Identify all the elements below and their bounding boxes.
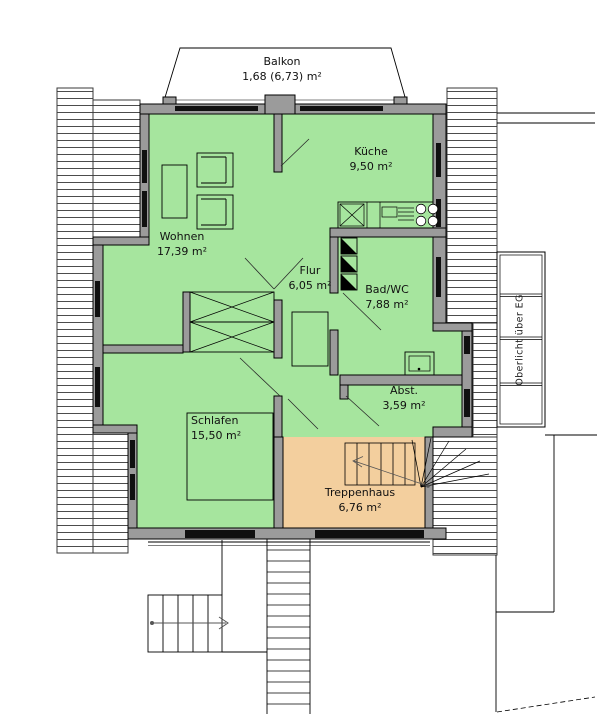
room-label-abstellraum: Abst.3,59 m² <box>382 384 425 414</box>
skylight-annotation: Oberlicht über EG <box>515 294 528 386</box>
room-label-treppenhaus: Treppenhaus6,76 m² <box>325 486 395 516</box>
room-label-kueche: Küche9,50 m² <box>349 145 392 175</box>
room-label-bad-wc: Bad/WC7,88 m² <box>365 283 409 313</box>
room-label-schlafen: Schlafen15,50 m² <box>191 414 241 444</box>
room-label-flur: Flur6,05 m² <box>288 264 331 294</box>
room-label-wohnen: Wohnen17,39 m² <box>157 230 207 260</box>
room-label-balkon: Balkon1,68 (6,73) m² <box>242 55 322 85</box>
stairs-external-left <box>148 540 267 652</box>
stairs-external-down <box>267 539 310 714</box>
stair-direction-arrow <box>150 617 228 629</box>
floor-plan: Balkon1,68 (6,73) m² Küche9,50 m² Wohnen… <box>0 0 611 714</box>
